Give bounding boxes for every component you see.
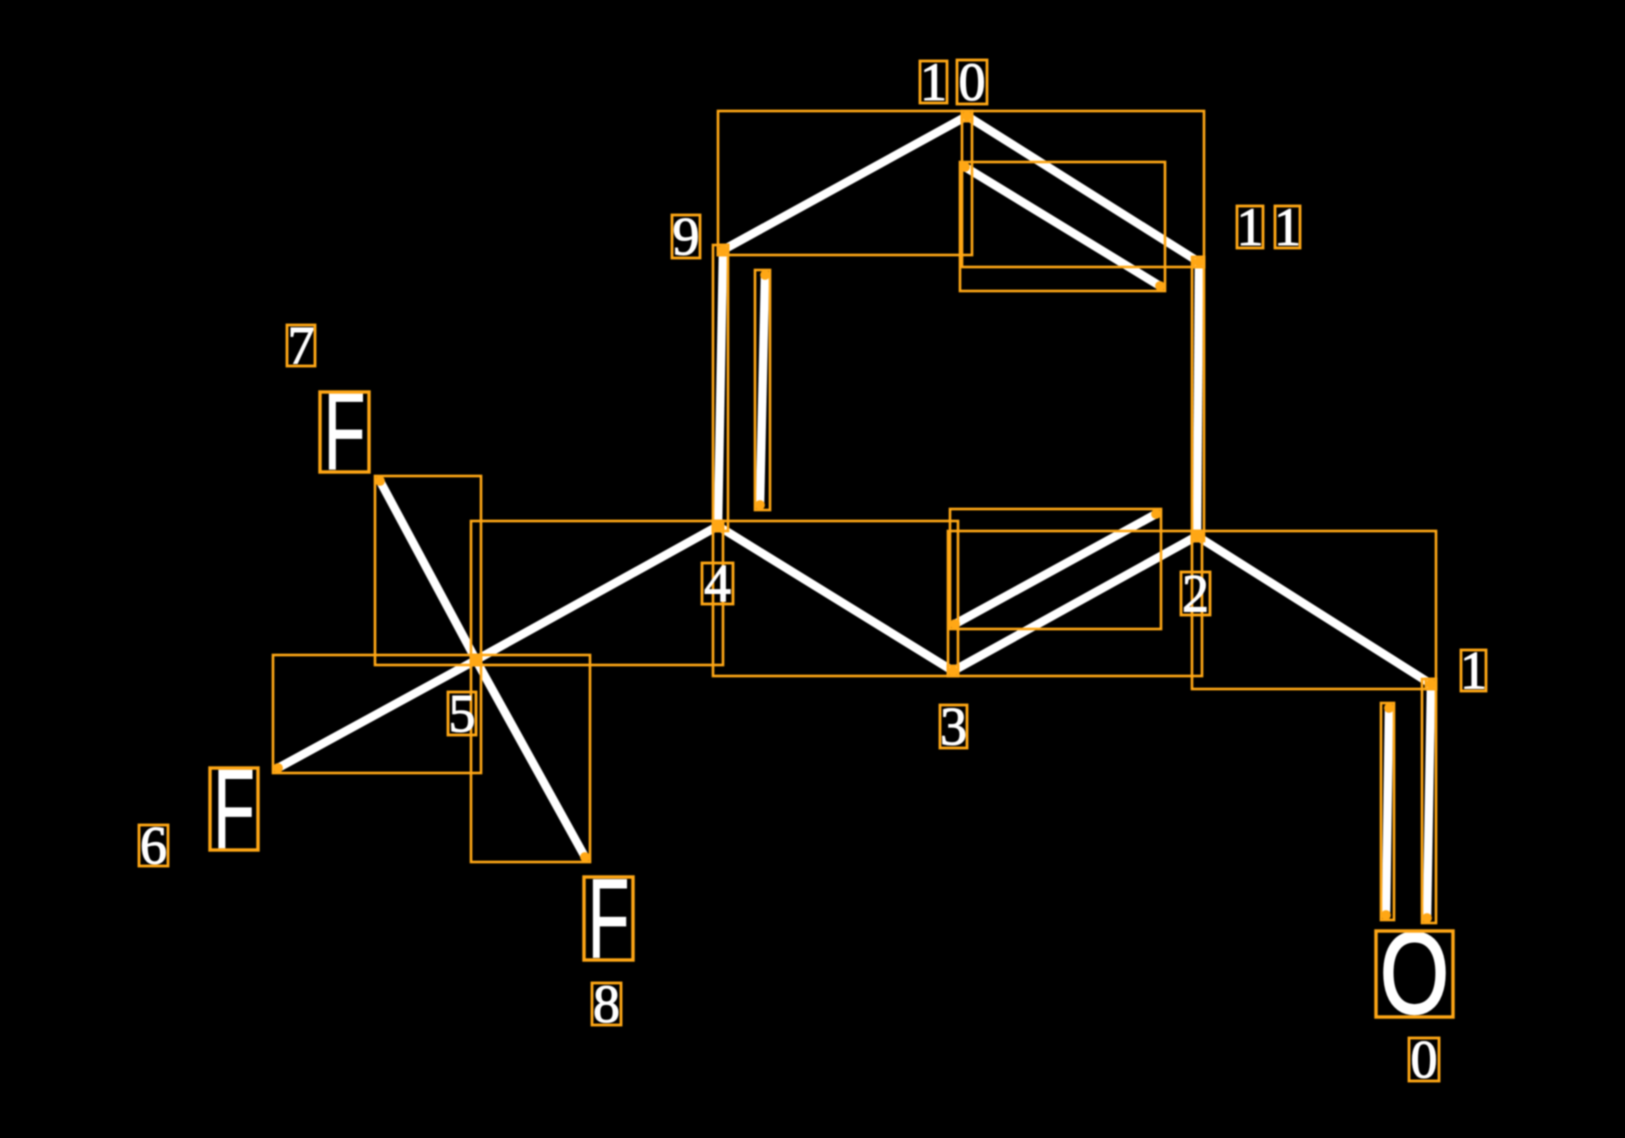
svg-text:F: F (213, 746, 255, 872)
svg-text:O: O (1380, 910, 1449, 1038)
svg-text:F: F (588, 856, 630, 982)
svg-text:F: F (324, 371, 366, 494)
